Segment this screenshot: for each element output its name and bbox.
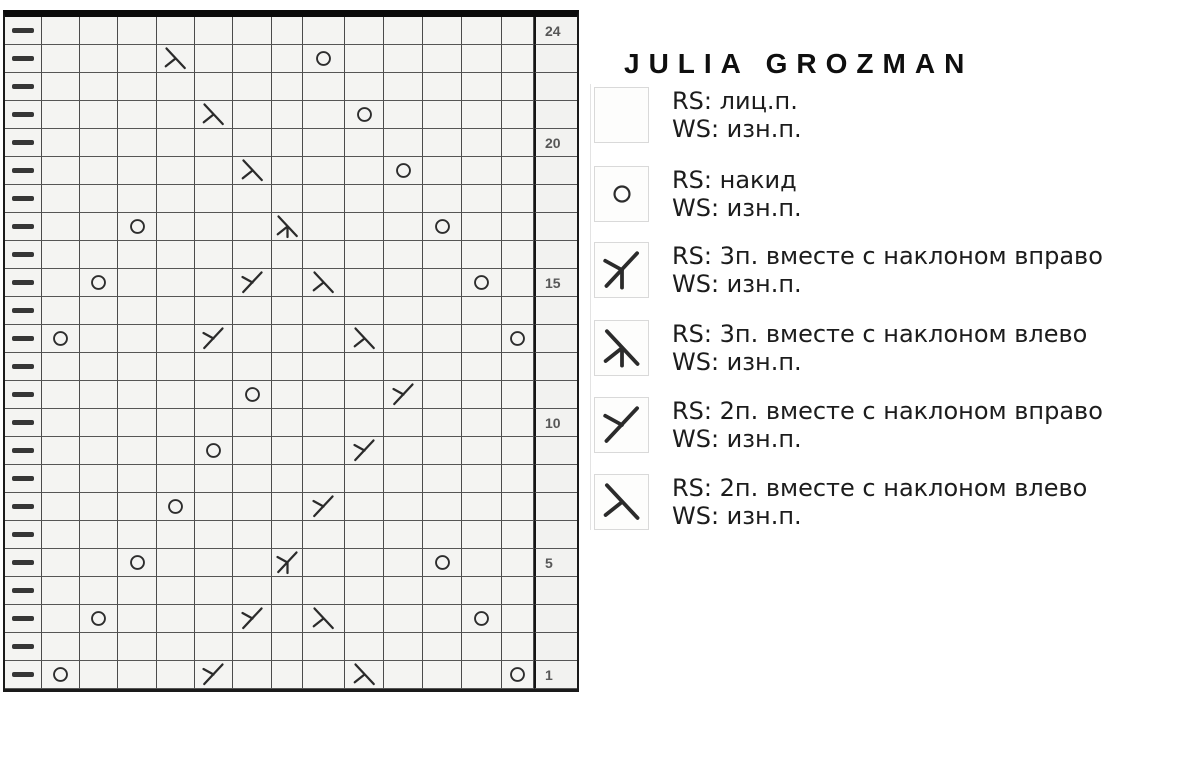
chart-cell-r10-c1 [42,409,80,437]
chart-cell-r19-c3 [118,157,157,185]
chart-cell-r8-c7 [272,465,303,493]
chart-cell-r2-c9 [345,633,384,661]
chart-cell-r12-c7 [272,353,303,381]
chart-cell-r6-c5 [195,521,233,549]
yo-symbol-icon [166,497,185,516]
legend-ws-label: WS: изн.п. [672,115,802,143]
chart-cell-r15-c8 [303,269,345,297]
yo-symbol-icon [508,665,527,684]
chart-cell-r8-c1 [42,465,80,493]
purl-dash-symbol [12,644,34,649]
chart-cell-r11-c2 [80,381,118,409]
chart-cell-r5-c1 [42,549,80,577]
purl-dash-symbol [12,168,34,173]
chart-cell-r18-c3 [118,185,157,213]
chart-cell-r19-c12 [462,157,502,185]
purl-dash-symbol [12,196,34,201]
chart-cell-r9-c2 [80,437,118,465]
chart-cell-r22-c7 [272,73,303,101]
chart-cell-r3-c9 [345,605,384,633]
chart-cell-r1-c12 [462,661,502,689]
chart-cell-r4-c10 [384,577,423,605]
chart-cell-r6-c6 [233,521,272,549]
legend-entry-text: RS: 2п. вместе с наклоном влевоWS: изн.п… [672,474,1087,530]
purl-dash-symbol [12,364,34,369]
chart-cell-r22-c0 [5,73,42,101]
chart-cell-r22-c12 [462,73,502,101]
purl-dash-symbol [12,392,34,397]
chart-cell-r12-c10 [384,353,423,381]
dec2R-symbol-icon [240,606,265,631]
chart-cell-r8-c13 [502,465,534,493]
chart-cell-r23-c10 [384,45,423,73]
chart-cell-r4-c3 [118,577,157,605]
chart-cell-r23-c3 [118,45,157,73]
chart-cell-r16-c7 [272,241,303,269]
chart-cell-r10-c0 [5,409,42,437]
chart-cell-r6-c4 [157,521,195,549]
chart-cell-r13-c1 [42,325,80,353]
chart-cell-r16-c9 [345,241,384,269]
chart-cell-r14-c12 [462,297,502,325]
chart-cell-r20-c13 [502,129,534,157]
chart-cell-r22-c1 [42,73,80,101]
chart-cell-r8-c12 [462,465,502,493]
purl-dash-symbol [12,448,34,453]
purl-dash-symbol [12,140,34,145]
chart-cell-r1-c7 [272,661,303,689]
chart-cell-r4-c8 [303,577,345,605]
scan-edge-line [590,84,591,530]
dec2R-symbol-icon [311,494,336,519]
chart-cell-r17-c2 [80,213,118,241]
chart-cell-r17-c0 [5,213,42,241]
legend-rs-label: RS: 2п. вместе с наклоном влево [672,474,1087,502]
chart-cell-r23-c4 [157,45,195,73]
chart-cell-r24-c9 [345,17,384,45]
chart-cell-r10-c7 [272,409,303,437]
chart-cell-r6-c2 [80,521,118,549]
row-number-15: 15 [534,269,577,297]
chart-cell-r7-c0 [5,493,42,521]
chart-cell-r13-c10 [384,325,423,353]
chart-cell-r1-c5 [195,661,233,689]
yo-symbol-icon [611,183,633,205]
chart-cell-r5-c4 [157,549,195,577]
yo-symbol-icon [433,217,452,236]
chart-cell-r1-c8 [303,661,345,689]
chart-cell-r10-c4 [157,409,195,437]
chart-cell-r1-c1 [42,661,80,689]
chart-cell-r17-c4 [157,213,195,241]
chart-cell-r14-c0 [5,297,42,325]
chart-cell-r18-c8 [303,185,345,213]
chart-cell-r18-c10 [384,185,423,213]
chart-cell-r24-c3 [118,17,157,45]
dec2L-symbol-icon [311,270,336,295]
yo-symbol-icon [89,609,108,628]
chart-cell-r14-c1 [42,297,80,325]
chart-cell-r2-c11 [423,633,462,661]
chart-grid: 2420151051 [5,17,577,689]
chart-cell-r19-c9 [345,157,384,185]
chart-cell-r1-c11 [423,661,462,689]
chart-cell-r16-c4 [157,241,195,269]
chart-cell-r13-c2 [80,325,118,353]
dec2L-symbol-icon [311,606,336,631]
chart-cell-r11-c9 [345,381,384,409]
chart-cell-r21-c7 [272,101,303,129]
chart-cell-r22-c9 [345,73,384,101]
chart-cell-r18-c5 [195,185,233,213]
dec3R-symbol-icon [601,249,643,291]
chart-cell-r18-c0 [5,185,42,213]
chart-cell-r15-c11 [423,269,462,297]
row-number-4 [534,577,577,605]
chart-cell-r22-c4 [157,73,195,101]
chart-cell-r9-c11 [423,437,462,465]
chart-cell-r18-c13 [502,185,534,213]
legend-symbol-box-dec3L [594,320,649,376]
chart-cell-r8-c2 [80,465,118,493]
purl-dash-symbol [12,336,34,341]
purl-dash-symbol [12,504,34,509]
chart-cell-r13-c12 [462,325,502,353]
chart-cell-r24-c0 [5,17,42,45]
chart-cell-r11-c3 [118,381,157,409]
purl-dash-symbol [12,112,34,117]
legend-entry-text: RS: накидWS: изн.п. [672,166,802,222]
dec2L-symbol-icon [352,662,377,687]
chart-cell-r21-c0 [5,101,42,129]
chart-cell-r19-c5 [195,157,233,185]
yo-symbol-icon [314,49,333,68]
chart-cell-r23-c2 [80,45,118,73]
chart-cell-r10-c5 [195,409,233,437]
chart-cell-r22-c6 [233,73,272,101]
row-number-21 [534,101,577,129]
legend-ws-label: WS: изн.п. [672,425,1103,453]
chart-cell-r16-c2 [80,241,118,269]
chart-cell-r3-c8 [303,605,345,633]
chart-cell-r23-c5 [195,45,233,73]
yo-symbol-icon [433,553,452,572]
chart-cell-r18-c4 [157,185,195,213]
chart-cell-r15-c5 [195,269,233,297]
row-number-3 [534,605,577,633]
chart-cell-r19-c10 [384,157,423,185]
chart-cell-r8-c9 [345,465,384,493]
chart-cell-r13-c0 [5,325,42,353]
chart-cell-r4-c0 [5,577,42,605]
chart-cell-r20-c7 [272,129,303,157]
chart-cell-r3-c7 [272,605,303,633]
chart-cell-r8-c4 [157,465,195,493]
chart-cell-r17-c10 [384,213,423,241]
chart-cell-r11-c12 [462,381,502,409]
chart-cell-r3-c11 [423,605,462,633]
yo-symbol-icon [355,105,374,124]
chart-cell-r20-c11 [423,129,462,157]
chart-cell-r24-c6 [233,17,272,45]
chart-cell-r4-c13 [502,577,534,605]
chart-cell-r21-c11 [423,101,462,129]
chart-cell-r24-c4 [157,17,195,45]
chart-cell-r10-c10 [384,409,423,437]
page-title: JULIA GROZMAN [624,48,973,80]
chart-cell-r21-c9 [345,101,384,129]
chart-cell-r20-c9 [345,129,384,157]
legend-ws-label: WS: изн.п. [672,502,1087,530]
purl-dash-symbol [12,252,34,257]
chart-cell-r12-c11 [423,353,462,381]
chart-cell-r14-c8 [303,297,345,325]
chart-cell-r23-c12 [462,45,502,73]
chart-cell-r19-c4 [157,157,195,185]
chart-cell-r7-c8 [303,493,345,521]
dec2R-symbol-icon [352,438,377,463]
chart-cell-r15-c0 [5,269,42,297]
chart-cell-r8-c10 [384,465,423,493]
chart-cell-r5-c6 [233,549,272,577]
chart-cell-r20-c4 [157,129,195,157]
chart-cell-r24-c1 [42,17,80,45]
knitting-pattern-page: { "page": { "title": "JULIA GROZMAN" }, … [0,0,1179,783]
dec3L-symbol-icon [601,327,643,369]
chart-cell-r18-c6 [233,185,272,213]
chart-cell-r1-c2 [80,661,118,689]
chart-cell-r3-c13 [502,605,534,633]
chart-cell-r13-c7 [272,325,303,353]
chart-cell-r6-c8 [303,521,345,549]
chart-cell-r1-c0 [5,661,42,689]
dec2L-symbol-icon [163,46,188,71]
chart-cell-r7-c4 [157,493,195,521]
chart-cell-r2-c4 [157,633,195,661]
legend-symbol-box-dec2L [594,474,649,530]
purl-dash-symbol [12,84,34,89]
chart-cell-r12-c13 [502,353,534,381]
purl-dash-symbol [12,308,34,313]
chart-cell-r5-c5 [195,549,233,577]
chart-cell-r7-c13 [502,493,534,521]
chart-cell-r2-c1 [42,633,80,661]
chart-cell-r15-c9 [345,269,384,297]
chart-cell-r9-c7 [272,437,303,465]
legend-symbol-box-dec2R [594,397,649,453]
chart-cell-r19-c7 [272,157,303,185]
chart-cell-r21-c4 [157,101,195,129]
chart-cell-r3-c6 [233,605,272,633]
chart-cell-r14-c6 [233,297,272,325]
chart-cell-r16-c3 [118,241,157,269]
chart-cell-r15-c1 [42,269,80,297]
chart-cell-r5-c0 [5,549,42,577]
yo-symbol-icon [243,385,262,404]
chart-cell-r19-c1 [42,157,80,185]
chart-cell-r16-c0 [5,241,42,269]
chart-cell-r11-c6 [233,381,272,409]
chart-cell-r7-c1 [42,493,80,521]
chart-cell-r22-c5 [195,73,233,101]
chart-cell-r12-c5 [195,353,233,381]
chart-cell-r18-c2 [80,185,118,213]
dec2R-symbol-icon [240,270,265,295]
purl-dash-symbol [12,56,34,61]
legend-rs-label: RS: 3п. вместе с наклоном вправо [672,242,1103,270]
chart-cell-r11-c1 [42,381,80,409]
chart-cell-r16-c1 [42,241,80,269]
chart-cell-r13-c9 [345,325,384,353]
purl-dash-symbol [12,28,34,33]
chart-cell-r8-c0 [5,465,42,493]
legend-rs-label: RS: лиц.п. [672,87,802,115]
chart-cell-r5-c10 [384,549,423,577]
chart-cell-r24-c13 [502,17,534,45]
chart-cell-r17-c11 [423,213,462,241]
chart-cell-r3-c5 [195,605,233,633]
chart-cell-r21-c3 [118,101,157,129]
chart-cell-r20-c6 [233,129,272,157]
chart-cell-r10-c12 [462,409,502,437]
chart-cell-r21-c2 [80,101,118,129]
chart-cell-r3-c4 [157,605,195,633]
row-number-10: 10 [534,409,577,437]
chart-cell-r23-c6 [233,45,272,73]
chart-cell-r11-c8 [303,381,345,409]
row-number-12 [534,353,577,381]
chart-cell-r5-c9 [345,549,384,577]
chart-cell-r12-c0 [5,353,42,381]
chart-cell-r19-c2 [80,157,118,185]
legend-symbol-box-knit [594,87,649,143]
row-number-23 [534,45,577,73]
chart-cell-r11-c5 [195,381,233,409]
chart-cell-r1-c6 [233,661,272,689]
chart-cell-r11-c11 [423,381,462,409]
purl-dash-symbol [12,532,34,537]
chart-cell-r5-c8 [303,549,345,577]
chart-cell-r12-c2 [80,353,118,381]
chart-cell-r8-c3 [118,465,157,493]
yo-symbol-icon [128,553,147,572]
chart-cell-r9-c8 [303,437,345,465]
chart-cell-r24-c5 [195,17,233,45]
chart-cell-r1-c3 [118,661,157,689]
row-number-13 [534,325,577,353]
chart-cell-r12-c6 [233,353,272,381]
chart-cell-r19-c11 [423,157,462,185]
chart-cell-r20-c3 [118,129,157,157]
chart-cell-r4-c1 [42,577,80,605]
chart-cell-r14-c10 [384,297,423,325]
chart-cell-r19-c8 [303,157,345,185]
chart-cell-r22-c8 [303,73,345,101]
purl-dash-symbol [12,224,34,229]
chart-cell-r2-c12 [462,633,502,661]
chart-cell-r6-c0 [5,521,42,549]
chart-cell-r20-c2 [80,129,118,157]
chart-cell-r9-c12 [462,437,502,465]
chart-cell-r13-c13 [502,325,534,353]
legend-entry-text: RS: 2п. вместе с наклоном вправоWS: изн.… [672,397,1103,453]
yo-symbol-icon [394,161,413,180]
chart-cell-r3-c1 [42,605,80,633]
chart-cell-r5-c3 [118,549,157,577]
chart-cell-r9-c5 [195,437,233,465]
row-number-1: 1 [534,661,577,689]
legend-ws-label: WS: изн.п. [672,348,1087,376]
chart-cell-r21-c12 [462,101,502,129]
chart-cell-r17-c12 [462,213,502,241]
chart-cell-r1-c9 [345,661,384,689]
purl-dash-symbol [12,616,34,621]
chart-cell-r4-c6 [233,577,272,605]
chart-cell-r18-c1 [42,185,80,213]
chart-cell-r15-c3 [118,269,157,297]
chart-cell-r24-c8 [303,17,345,45]
chart-cell-r22-c13 [502,73,534,101]
row-number-17 [534,213,577,241]
chart-cell-r10-c3 [118,409,157,437]
chart-cell-r17-c9 [345,213,384,241]
chart-cell-r10-c6 [233,409,272,437]
dec3L-symbol-icon [275,214,300,239]
chart-cell-r2-c10 [384,633,423,661]
chart-cell-r3-c3 [118,605,157,633]
chart-cell-r23-c8 [303,45,345,73]
chart-cell-r2-c13 [502,633,534,661]
chart-cell-r2-c5 [195,633,233,661]
chart-cell-r6-c7 [272,521,303,549]
chart-cell-r15-c12 [462,269,502,297]
chart-cell-r4-c12 [462,577,502,605]
yo-symbol-icon [51,665,70,684]
chart-cell-r8-c11 [423,465,462,493]
chart-cell-r14-c9 [345,297,384,325]
chart-cell-r12-c3 [118,353,157,381]
chart-cell-r10-c11 [423,409,462,437]
row-number-11 [534,381,577,409]
chart-cell-r23-c11 [423,45,462,73]
chart-cell-r22-c11 [423,73,462,101]
chart-cell-r5-c7 [272,549,303,577]
chart-cell-r6-c10 [384,521,423,549]
chart-cell-r2-c8 [303,633,345,661]
row-number-2 [534,633,577,661]
chart-cell-r10-c13 [502,409,534,437]
dec2R-symbol-icon [201,662,226,687]
chart-cell-r4-c9 [345,577,384,605]
chart-cell-r7-c12 [462,493,502,521]
chart-cell-r15-c13 [502,269,534,297]
chart-cell-r7-c5 [195,493,233,521]
legend-rs-label: RS: накид [672,166,802,194]
chart-cell-r2-c6 [233,633,272,661]
yo-symbol-icon [204,441,223,460]
chart-cell-r17-c6 [233,213,272,241]
chart-cell-r9-c6 [233,437,272,465]
chart-cell-r14-c2 [80,297,118,325]
chart-cell-r13-c8 [303,325,345,353]
chart-cell-r5-c13 [502,549,534,577]
chart-cell-r20-c1 [42,129,80,157]
chart-cell-r20-c5 [195,129,233,157]
chart-cell-r21-c13 [502,101,534,129]
purl-dash-symbol [12,588,34,593]
chart-cell-r6-c12 [462,521,502,549]
chart-cell-r4-c2 [80,577,118,605]
